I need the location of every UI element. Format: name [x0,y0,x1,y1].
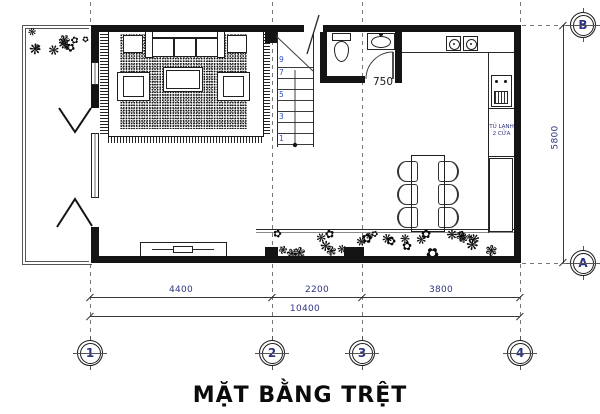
stair-break-line [276,36,313,71]
grid-bubble-1: 1 [73,336,107,370]
plant-glyph: ✿ [272,227,284,241]
bath-door-dimension: 750 [370,77,396,88]
toilet-bowl [334,41,349,62]
carpet-fringe-left [100,28,108,135]
grid-bubble-A-label: A [573,253,594,274]
grid-line-3 [362,33,363,256]
dim-5800: 5800 [552,123,561,153]
left-window-1 [91,62,99,85]
stair-step [277,144,313,145]
side-table-right [227,35,247,53]
dining-table [411,155,445,232]
grid-bubble-B-label: B [573,15,594,36]
grid-bubble-4-label: 4 [510,343,531,364]
grid-bubble-3-label: 3 [352,343,373,364]
bath-faucet [379,33,383,36]
dim-line-segments [90,297,520,298]
stove-burner-2 [463,36,478,51]
sink-tap-dot-1 [495,80,498,83]
sofa-seat-1 [152,38,174,57]
stair-number: 1 [279,135,284,143]
grid-bubble-3: 3 [345,336,379,370]
wall-right [514,25,521,263]
grid-bubble-1-label: 1 [80,343,101,364]
side-table-left [123,35,143,53]
grid-bubble-A: A [566,246,600,280]
grid-line-4-top [520,2,521,25]
bath-wall-right [395,32,402,83]
toilet-tank [332,33,351,41]
dim-3800: 3800 [411,286,471,295]
bath-door-arc [366,52,393,79]
dim-10400: 10400 [275,305,335,314]
wall-left-seg2 [91,85,99,108]
plant-glyph: ✿ [80,33,91,45]
floor-plan-canvas: ❋✿❃❋✿❃❋✿❃❋ 9 7 5 3 1 [0,0,600,414]
sofa-seat-3 [196,38,218,57]
grid-line-3-bottom [362,264,363,338]
wall-left-seg1 [91,32,99,62]
grid-bubble-2: 2 [255,336,289,370]
left-window-2 [91,133,99,198]
bath-sink-basin [371,36,391,48]
armchair-left [117,72,150,101]
drawing-title: MẶT BẰNG TRỆT [150,383,450,408]
stair-number: 7 [279,69,284,77]
grid-line-1-top [90,2,91,25]
corner-plant-cluster: ❋✿❃❋✿❃❋✿❃❋ [24,26,92,60]
sofa-seat-2 [174,38,196,57]
stair-wall-right [313,32,314,147]
kitchen-cabinet [489,158,513,232]
grid-bubble-B: B [566,8,600,42]
stair-number: 3 [279,113,284,121]
fridge-label-line2: 2 CỬA [493,131,511,137]
stair-number: 5 [279,91,284,99]
grid-bubble-2-label: 2 [262,343,283,364]
sofa-armrest-right [217,30,225,58]
planter-bed: ❋✿❃❋✿❃❋✿❃❋✿❃❋✿❃❋✿❃❋✿❃❋✿❃❋✿❃❋ [250,226,516,260]
plant-glyph: ❋ [27,26,40,37]
stair-step [277,122,313,123]
grid-line-4-bottom [520,264,521,338]
back-door-opening [304,25,323,32]
fridge-label: TỦ LẠNH 2 CỬA [488,124,515,137]
plant-glyph: ❋ [443,229,458,240]
dim-line-total [90,316,520,317]
grid-line-1-bottom [90,264,91,338]
wall-left-seg3 [91,227,99,256]
grid-bubble-4: 4 [503,336,537,370]
armchair-right [217,72,250,101]
stair-step [277,100,313,101]
plant-glyph: ✿ [417,227,434,241]
sink-tap-dot-2 [504,80,507,83]
coffee-table-top [166,70,200,89]
tv-set [173,246,193,253]
stove-burner-1 [446,36,461,51]
grid-line-3-top [362,2,363,25]
wall-bottom [91,256,521,263]
grid-line-2 [272,33,273,256]
fridge-label-line1: TỦ LẠNH [489,124,514,130]
plant-glyph: ❋ [318,240,335,253]
column-grid2-top [265,32,277,43]
sink-drainer [494,91,508,104]
dim-2200: 2200 [287,286,347,295]
yard-border-inner [25,28,89,262]
grid-line-2-top [272,2,273,25]
coffee-table [163,67,203,92]
column-grid2-bottom [265,247,278,256]
column-grid3-bottom [344,247,364,256]
kitchen-counter-edge [402,52,514,53]
grid-line-2-bottom [272,264,273,338]
armchair-left-seat [123,76,144,97]
dim-line-height [563,25,564,263]
dim-4400: 4400 [151,286,211,295]
stair-step [277,78,313,79]
stair-number: 9 [279,56,284,64]
armchair-right-seat [223,76,244,97]
